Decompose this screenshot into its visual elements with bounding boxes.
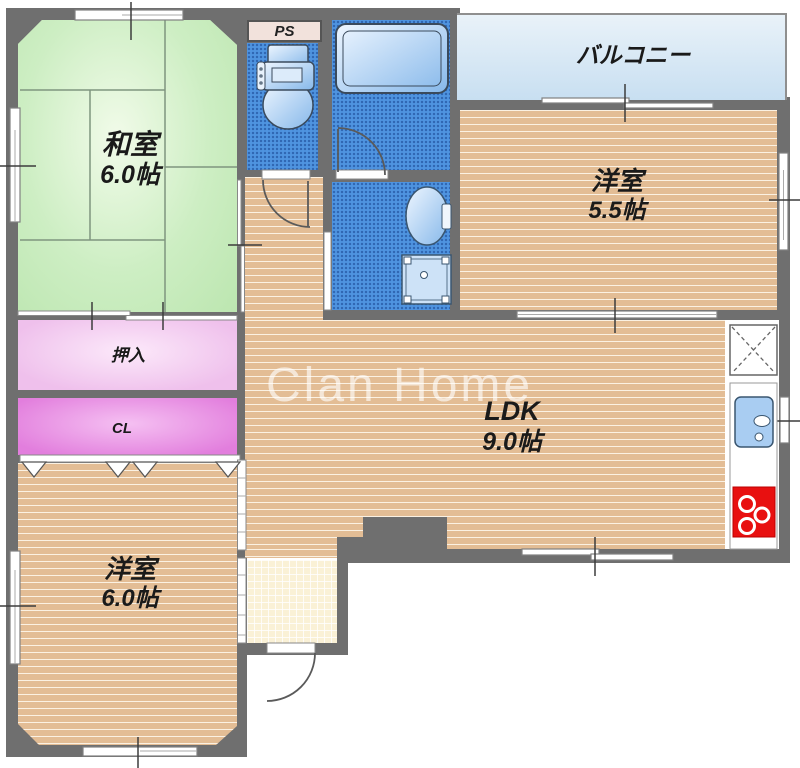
youshitsu-55-name: 洋室 bbox=[537, 166, 697, 197]
entrance-step-block bbox=[337, 517, 447, 557]
toilet-icon bbox=[257, 45, 314, 129]
oshiire-label: 押入 bbox=[68, 346, 188, 366]
door-swing-arcs bbox=[263, 128, 385, 701]
kitchen-sink-icon bbox=[735, 397, 773, 447]
washer-pan-icon bbox=[402, 255, 451, 304]
stove-icon bbox=[733, 487, 775, 537]
cl-label: CL bbox=[92, 420, 152, 438]
refrigerator-space-icon bbox=[730, 325, 777, 375]
youshitsu-6-size: 6.0帖 bbox=[50, 585, 210, 613]
washitsu-name: 和室 bbox=[50, 128, 210, 161]
ldk-size: 9.0帖 bbox=[432, 428, 592, 458]
washbasin-icon bbox=[406, 187, 451, 245]
balcony-label: バルコニー bbox=[543, 42, 723, 69]
oshiire-name: 押入 bbox=[111, 346, 145, 365]
folding-door-triangles bbox=[22, 462, 240, 477]
bathtub-icon bbox=[336, 24, 448, 93]
ldk-name: LDK bbox=[432, 396, 592, 428]
floor-plan: PS bbox=[0, 0, 800, 768]
washitsu-size: 6.0帖 bbox=[50, 161, 210, 191]
youshitsu-55-size: 5.5帖 bbox=[537, 197, 697, 225]
balcony-name: バルコニー bbox=[576, 42, 691, 68]
youshitsu-55-label: 洋室 5.5帖 bbox=[537, 166, 697, 225]
washitsu-label: 和室 6.0帖 bbox=[50, 128, 210, 191]
cl-name: CL bbox=[112, 420, 132, 437]
youshitsu-6-label: 洋室 6.0帖 bbox=[50, 554, 210, 613]
ldk-label: LDK 9.0帖 bbox=[432, 396, 592, 457]
youshitsu-6-name: 洋室 bbox=[50, 554, 210, 585]
